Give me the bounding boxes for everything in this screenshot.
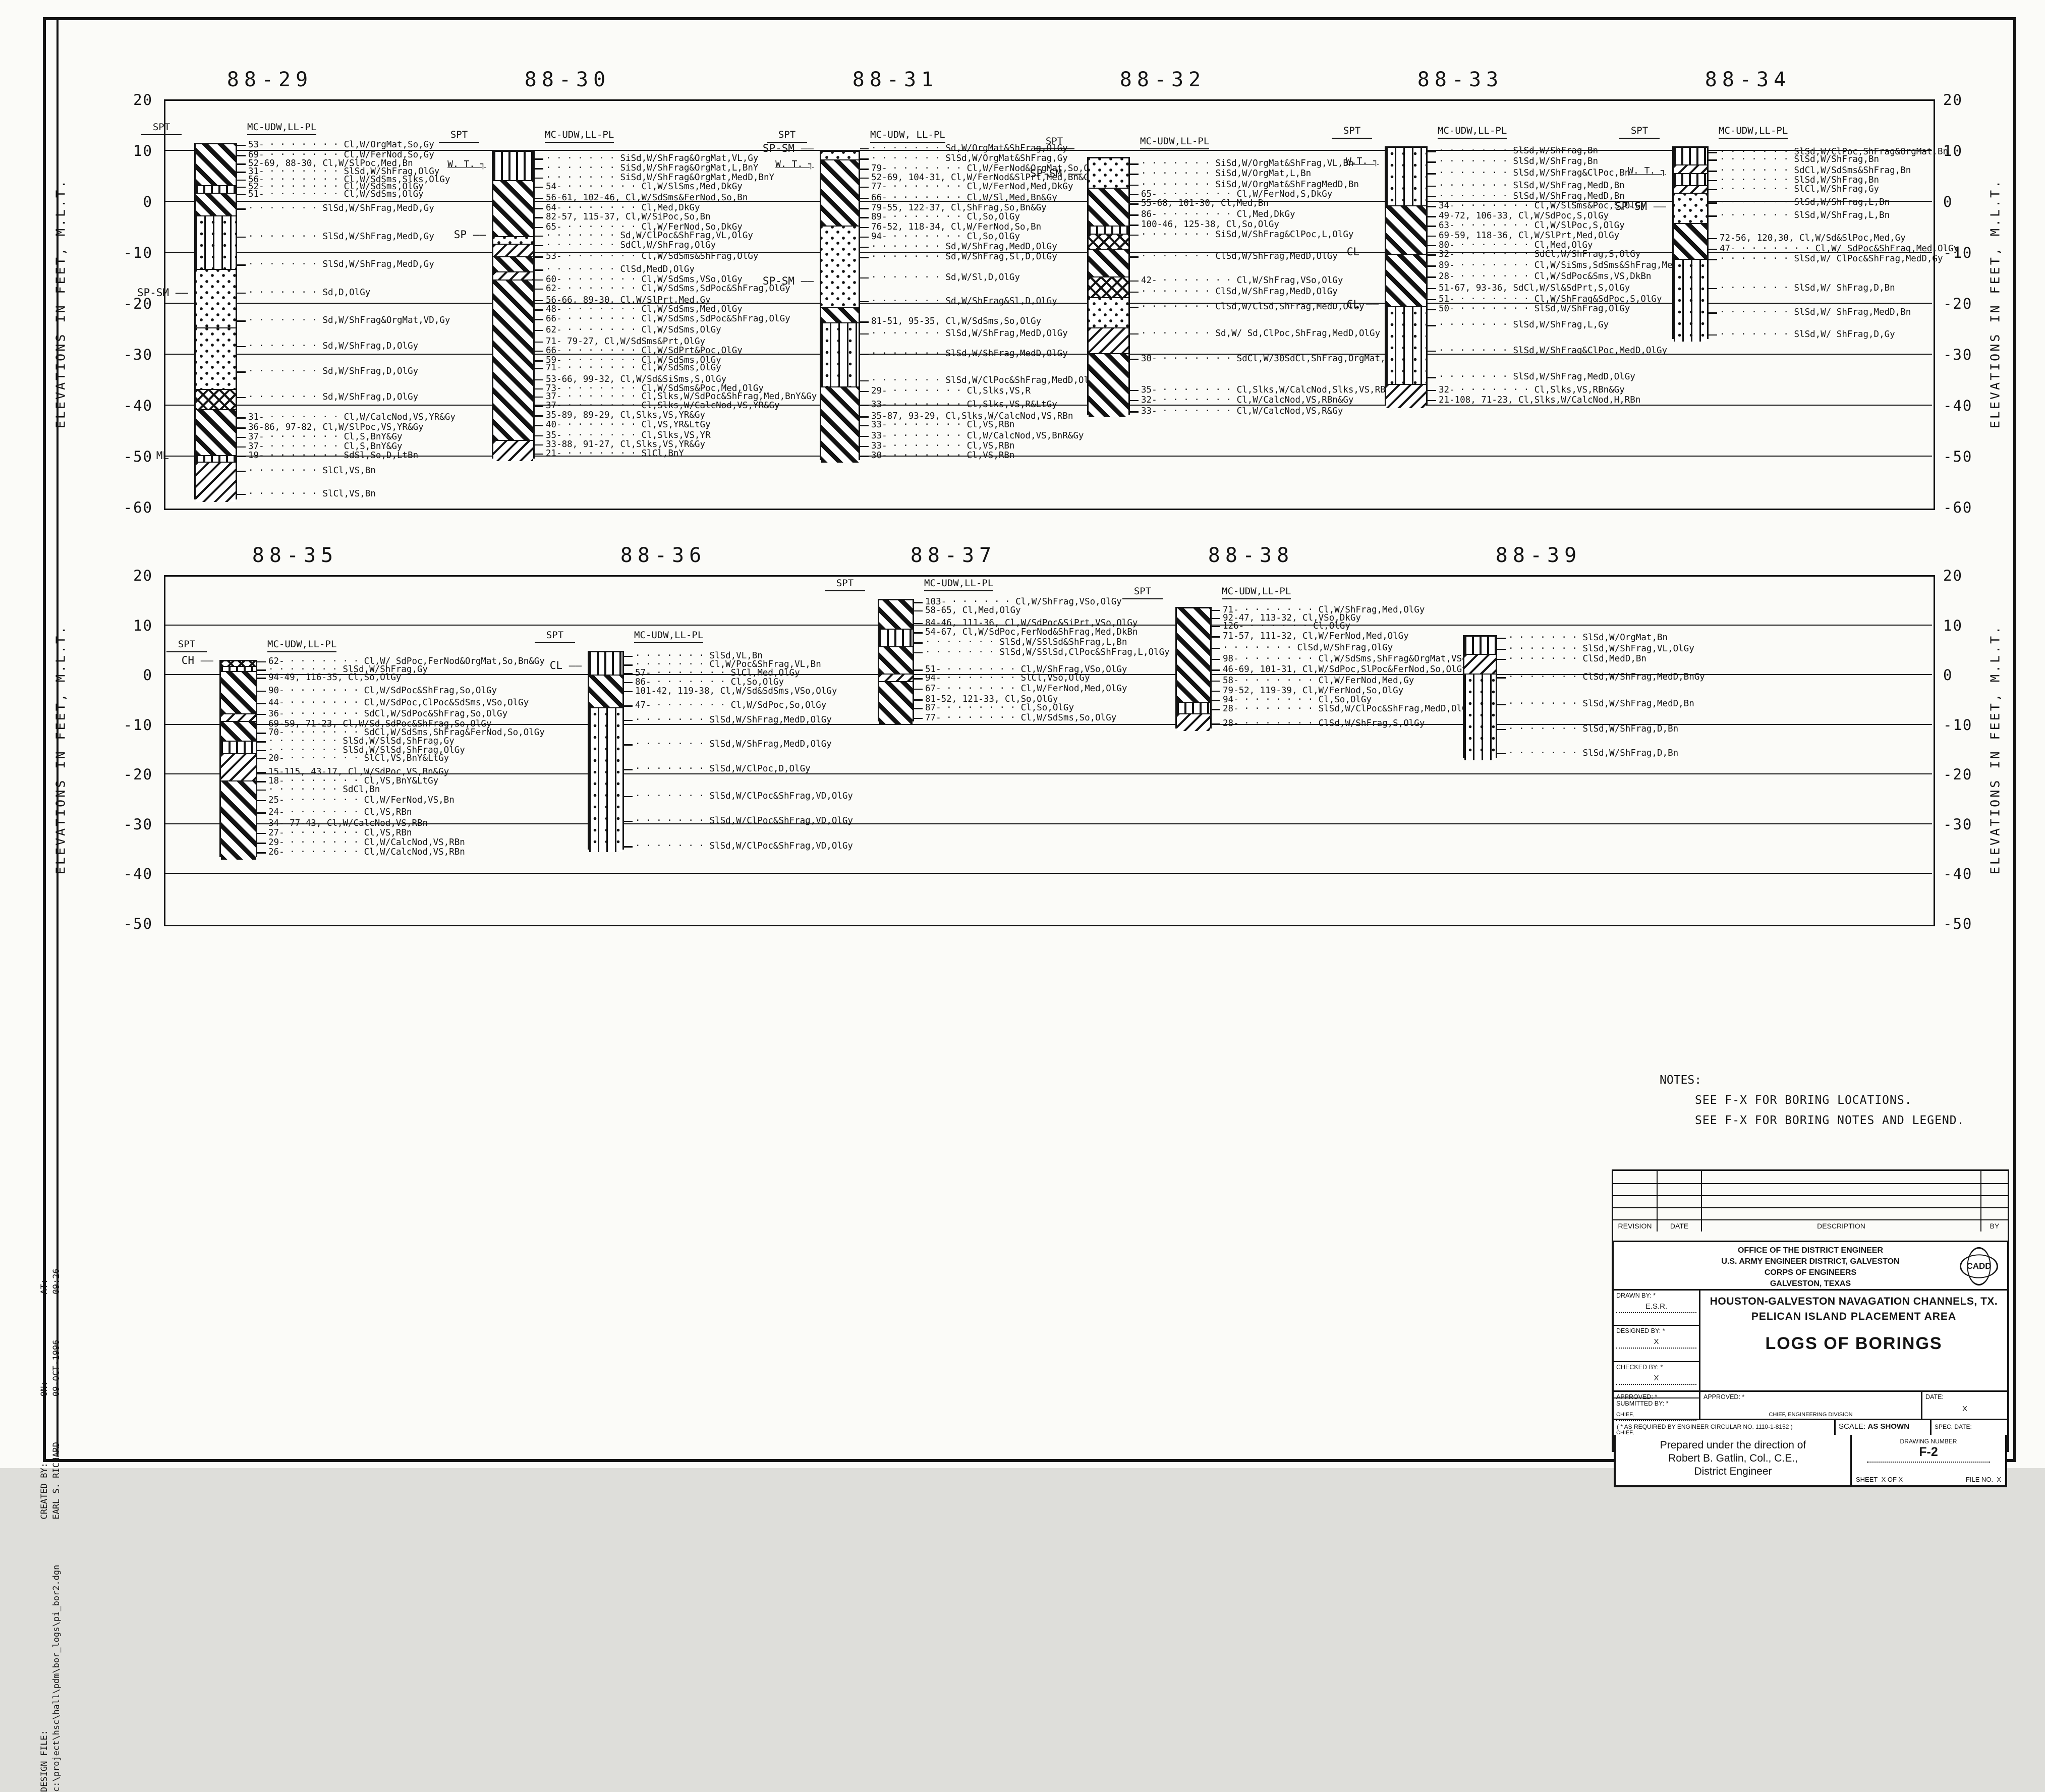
entry-tick	[624, 796, 633, 798]
cadd-logo-icon: CADD	[1960, 1247, 1998, 1285]
entry-tick	[237, 471, 246, 472]
entry-tick	[1130, 390, 1139, 391]
entry-tick	[535, 236, 543, 237]
entry-tick	[535, 397, 543, 398]
entry-label: 27- · · · · · · · Cl,VS,RBn	[268, 828, 412, 838]
entry-label: 33- · · · · · · · Cl,Slks,VS,R&LtGy	[871, 400, 1057, 410]
stratum-segment-diag	[1386, 254, 1426, 307]
entry-label: · · · · · · · SlCl,VS,Bn	[248, 466, 376, 476]
entry-tick	[1709, 215, 1717, 217]
entry-tick	[257, 750, 266, 752]
soil-class-label: CL ——	[471, 659, 582, 671]
entry-tick	[914, 642, 923, 644]
entry-tick	[1212, 648, 1220, 649]
entry-label: · · · · · · · SlSd,W/ClPoc&ShFrag,VD,OlG…	[635, 841, 853, 851]
entry-label: 126- · · · · · · Cl,OlGy	[1223, 621, 1350, 631]
entry-label: 47- · · · · · · · Cl,W/SdPoc,So,OlGy	[635, 700, 826, 710]
entry-label: 21- · · · · · · · SlCl,BnY	[546, 449, 684, 459]
entry-label: 69-59, 118-36, Cl,W/SlPrt,Med,OlGy	[1439, 231, 1619, 241]
mc-udw-ll-pl-header: MC-UDW,LL-PL	[1140, 136, 1209, 149]
entry-label: 33- · · · · · · · Cl,VS,RBn	[871, 441, 1014, 451]
entry-tick	[624, 656, 633, 657]
axis-title-right: ELEVATIONS IN FEET, M.L.T.	[1988, 623, 2003, 875]
entry-tick	[535, 368, 543, 369]
boring-title: 88-32	[1057, 68, 1269, 91]
entry-tick	[1212, 681, 1220, 682]
stratum-segment-diag	[1089, 249, 1128, 278]
entry-tick	[257, 733, 266, 734]
entry-tick	[535, 289, 543, 290]
elevation-gridline	[164, 823, 1932, 824]
entry-tick	[535, 454, 543, 455]
axis-tick-label: 20	[1943, 91, 1963, 108]
stratum-segment-vert	[589, 652, 622, 675]
entry-tick	[860, 354, 869, 355]
boring-column	[492, 150, 535, 459]
axis-tick-label: -10	[1943, 716, 1972, 734]
spt-header: SPT	[439, 129, 479, 143]
entry-tick	[914, 718, 923, 719]
entry-tick	[914, 708, 923, 709]
entry-label: · · · · · · · SlSd,W/ClPoc&ShFrag,MedD,O…	[871, 375, 1100, 385]
stratum-segment-diag	[821, 307, 859, 323]
entry-tick	[1428, 245, 1436, 247]
entry-tick	[1212, 691, 1220, 692]
stratum-segment-vertdot	[589, 707, 622, 852]
entry-label: 81-51, 95-35, Cl,W/SdSms,So,OlGy	[871, 316, 1041, 326]
entry-label: · · · · · · · SlSd,W/ShFrag,L,Bn	[1720, 197, 1890, 207]
spt-header: SPT	[1619, 125, 1660, 139]
stratum-segment-diag	[821, 159, 859, 227]
created-by-value: EARL S. RICHARD	[51, 1442, 62, 1520]
drawing-sheet: DESIGN FILE: c:\project\hsc\hall\pdm\bor…	[0, 0, 2045, 1468]
entry-tick	[257, 772, 266, 773]
entry-tick	[1212, 610, 1220, 611]
entry-label: · · · · · · · SlSd,W/ShFrag,L,Gy	[1439, 320, 1609, 330]
entry-label: · · · · · · · SlSd,W/ShFrag,MedD,OlGy	[871, 328, 1068, 339]
design-file-value: c:\project\hsc\hall\pdm\bor_logs\pi_bor2…	[51, 1565, 62, 1792]
entry-label: 29- · · · · · · · Cl,Slks,VS,R	[871, 386, 1031, 396]
entry-label: 35-89, 89-29, Cl,Slks,VS,YR&Gy	[546, 410, 705, 420]
stratum-segment-vert	[1674, 148, 1707, 164]
entry-label: 37- · · · · · · · Cl,Slks,W/CalcNod,VS,Y…	[546, 401, 780, 411]
entry-tick	[535, 360, 543, 362]
designed-by-cell: DESIGNED BY: * X	[1614, 1326, 1699, 1362]
stratum-segment-cross	[196, 389, 236, 410]
stratum-segment-diag	[1089, 353, 1128, 417]
entry-label: · · · · · · · Sd,W/ShFrag,D,OlGy	[248, 392, 418, 402]
title-block: REVISION DATE DESCRIPTION BY OFFICE OF T…	[1612, 1169, 2009, 1452]
axis-tick-label: -60	[1943, 499, 1972, 516]
entry-tick	[535, 379, 543, 381]
entry-tick	[535, 208, 543, 209]
entry-tick	[535, 435, 543, 437]
entry-tick	[1428, 299, 1436, 301]
entry-label: · · · · · · · SlSd,W/SSlSd&ShFrag,L,Bn	[925, 637, 1127, 647]
mc-udw-ll-pl-header: MC-UDW,LL-PL	[1438, 125, 1507, 139]
stratum-segment-diag	[879, 646, 913, 675]
entry-tick	[1428, 390, 1436, 391]
soil-class-label: CL ——	[1268, 298, 1379, 310]
entry-tick	[535, 319, 543, 320]
boring-title: 88-33	[1354, 68, 1566, 91]
entry-tick	[624, 664, 633, 666]
entry-label: 98- · · · · · · · Cl,W/SdSms,ShFrag&OrgM…	[1223, 654, 1494, 664]
entry-label: 51- · · · · · · · Cl,W/SdSms,OlGy	[248, 189, 424, 199]
boring-title: 88-39	[1433, 544, 1644, 567]
entry-tick	[237, 208, 246, 210]
entry-tick	[257, 812, 266, 814]
sheet-number: SHEET X OF X	[1856, 1476, 1903, 1483]
mc-udw-ll-pl-header: MC-UDW,LL-PL	[247, 122, 316, 135]
entry-label: 66- · · · · · · · Cl,W/SdSms,SdPoc&ShFra…	[546, 314, 790, 324]
entry-label: 44- · · · · · · · Cl,W/SdPoc,ClPoc&SdSms…	[268, 698, 529, 708]
checked-by-value: X	[1616, 1374, 1696, 1385]
axis-tick-label: -20	[97, 766, 153, 783]
entry-label: 55-68, 101-30, Cl,Med,Bn	[1141, 198, 1269, 208]
project-title-line1: HOUSTON-GALVESTON NAVAGATION CHANNELS, T…	[1700, 1296, 2007, 1308]
boring-title: 88-34	[1642, 68, 1854, 91]
created-by-stamp: CREATED BY: EARL S. RICHARD	[39, 1442, 62, 1520]
stratum-segment-diag	[493, 279, 533, 441]
entry-tick	[257, 703, 266, 704]
entry-tick	[914, 602, 923, 603]
revision-col-header: REVISION	[1613, 1220, 1658, 1231]
entry-tick	[1428, 206, 1436, 207]
entry-label: 31- · · · · · · · Cl,W/CalcNod,VS,YR&Gy	[248, 412, 456, 422]
stratum-segment-vert	[221, 741, 256, 754]
stratum-segment-diag2	[1464, 654, 1496, 675]
entry-tick	[237, 456, 246, 457]
entry-tick	[1497, 649, 1506, 650]
entry-tick	[257, 781, 266, 782]
entry-tick	[535, 415, 543, 417]
date-value: X	[1925, 1405, 2004, 1413]
entry-tick	[1212, 626, 1220, 628]
entry-label: 87- · · · · · · · Cl,So,OlGy	[925, 703, 1074, 713]
water-table-label: W. T. ┐	[375, 159, 486, 170]
entry-label: 25- · · · · · · · Cl,W/FerNod,VS,Bn	[268, 795, 455, 805]
axis-tick-label: -20	[1943, 295, 1972, 312]
entry-label: · · · · · · · SlSd,W/ ShFrag,D,Gy	[1720, 329, 1895, 340]
entry-tick	[1428, 151, 1436, 152]
entry-tick	[237, 397, 246, 399]
axis-tick-label: -20	[1943, 766, 1972, 783]
entry-tick	[1428, 236, 1436, 237]
entry-tick	[1130, 333, 1139, 335]
entry-label: 33- · · · · · · · Cl,VS,RBn	[871, 420, 1014, 430]
entry-tick	[914, 689, 923, 690]
boring-title: 88-31	[789, 68, 1001, 91]
soil-class-label: CH ——	[102, 654, 213, 666]
entry-tick	[1212, 636, 1220, 638]
footnote-row: ( * AS REQUIRED BY ENGINEER CIRCULAR NO.…	[1614, 1419, 2007, 1435]
boring-title: 88-30	[462, 68, 673, 91]
stratum-segment-diag	[221, 671, 256, 714]
entry-tick	[1212, 709, 1220, 710]
entry-tick	[1428, 309, 1436, 310]
entry-tick	[535, 406, 543, 407]
water-table-label: W.T. ┐	[1268, 156, 1379, 166]
entry-tick	[1428, 226, 1436, 227]
designed-by-value: X	[1616, 1337, 1696, 1349]
prepared-under-cell: Prepared under the direction of Robert B…	[1616, 1435, 1852, 1485]
entry-label: 84-46, 111-36, Cl,W/SdPoc&SiPrt,VSo,OlGy	[925, 618, 1138, 628]
entry-tick	[1428, 216, 1436, 217]
axis-tick-label: -10	[97, 244, 153, 261]
entry-tick	[1130, 235, 1139, 236]
entry-tick	[1130, 292, 1139, 293]
approved-left-cell: APPROVED: * CHIEF,	[1614, 1392, 1700, 1419]
entry-tick	[1497, 638, 1506, 639]
bottom-row: Prepared under the direction of Robert B…	[1614, 1435, 2007, 1487]
entry-tick	[1709, 249, 1717, 250]
boring-column	[1385, 146, 1428, 406]
stratum-segment-diag	[1089, 188, 1128, 227]
drawing-number: F-2	[1867, 1445, 1990, 1463]
entry-label: · · · · · · · Sd,W/ShFrag&OrgMat,VD,Gy	[248, 315, 450, 325]
entry-tick	[1709, 259, 1717, 260]
axis-tick-label: 10	[1943, 617, 1963, 634]
stratum-segment-vertdot	[1674, 259, 1707, 342]
entry-tick	[535, 198, 543, 199]
entry-label: · · · · · · · SlSd,W/ShFrag,MedD,Gy	[248, 203, 434, 213]
entry-label: 63- · · · · · · · Cl,W/SlPoc,S,OlGy	[1439, 220, 1625, 231]
office-line: CORPS OF ENGINEERS	[1614, 1267, 2007, 1278]
entry-label: · · · · · · · SlSd,W/OrgMat&ShFrag,Gy	[871, 153, 1068, 163]
entry-label: 20- · · · · · · · SlCl,VS,BnY&LtGy	[268, 753, 449, 763]
entry-label: · · · · · · · SlSd,W/SSlSd,ClPoc&ShFrag,…	[925, 647, 1170, 657]
entry-tick	[1497, 704, 1506, 705]
entry-label: · · · · · · · SlSd,W/ShFrag,Bn	[1720, 175, 1879, 185]
stratum-segment-vertdot	[1386, 148, 1426, 205]
entry-label: 46-69, 101-31, Cl,W/SdPoc,SlPoc&FerNod,S…	[1223, 664, 1467, 675]
entry-label: · · · · · · · ClSd,MedD,Bn	[1508, 654, 1646, 664]
stratum-segment-diag	[196, 193, 236, 216]
entry-label: 28- · · · · · · · Cl,W/SdPoc&Sms,VS,DkBn	[1439, 271, 1651, 282]
entry-label: · · · · · · · SdCl,W/SdSms&ShFrag,Bn	[1720, 165, 1911, 176]
stratum-segment-vertdot	[1386, 306, 1426, 385]
axis-tick-label: 0	[97, 193, 153, 210]
stratum-segment-cross	[221, 661, 256, 666]
entry-tick	[535, 425, 543, 426]
entry-tick	[535, 342, 543, 343]
entry-label: 65- · · · · · · · Cl,W/FerNod,S,DkGy	[1141, 189, 1332, 199]
entry-label: · · · · · · · SlSd,W/ShFrag,VL,OlGy	[1508, 644, 1694, 654]
entry-tick	[914, 669, 923, 671]
entry-label: · · · · · · · SlSd,W/ShFrag,Bn	[1439, 146, 1598, 156]
entry-tick	[535, 256, 543, 258]
stratum-segment-dots	[196, 269, 236, 328]
entry-label: · · · · · · · Sd,W/ShFrag,MedD,OlGy	[871, 242, 1057, 252]
soil-class-label: SP-SM ——	[1555, 200, 1666, 212]
boring-column	[194, 143, 237, 499]
entry-label: 72-56, 120,30, Cl,W/Sd&SlPoc,Med,Gy	[1720, 233, 1906, 243]
entry-label: 19- · · · · · · · SdSl,So,D,LtBn	[248, 451, 418, 461]
entry-label: 71- · · · · · · · Cl,W/SdSms,OlGy	[546, 363, 721, 373]
entry-tick	[860, 456, 869, 457]
entry-label: 21-108, 71-23, Cl,Slks,W/CalcNod,H,RBn	[1439, 395, 1640, 405]
entry-tick	[1709, 180, 1717, 182]
entry-tick	[535, 187, 543, 188]
entry-label: 94- · · · · · · · Cl,So,OlGy	[871, 232, 1020, 242]
entry-label: 82-57, 115-37, Cl,W/SiPoc,So,Bn	[546, 212, 711, 222]
entry-label: 32- · · · · · · · SdCl,W/ShFrag,S,OlGy	[1439, 249, 1640, 259]
entry-tick	[1130, 400, 1139, 402]
office-block: OFFICE OF THE DISTRICT ENGINEER U.S. ARM…	[1614, 1242, 2007, 1291]
entry-tick	[1428, 325, 1436, 326]
entry-tick	[535, 279, 543, 281]
stratum-segment-diag	[196, 144, 236, 185]
axis-tick-label: -60	[97, 499, 153, 516]
boring-column	[878, 599, 914, 721]
entry-label: 32- · · · · · · · Cl,Slks,VS,RBn&Gy	[1439, 385, 1625, 395]
soil-class-label: SP-SM ——	[703, 275, 814, 287]
entry-tick	[237, 172, 246, 173]
design-file-label: DESIGN FILE:	[39, 1565, 49, 1792]
axis-title-left: ELEVATIONS IN FEET, M.L.T.	[53, 178, 68, 430]
elevation-gridline	[164, 456, 1932, 457]
stratum-segment-dots	[1674, 193, 1707, 225]
entry-tick	[257, 758, 266, 760]
entry-label: · · · · · · · ClSd,W/ShFrag,MedD,BnGy	[1508, 672, 1705, 682]
entry-tick	[860, 227, 869, 229]
revision-table: REVISION DATE DESCRIPTION BY	[1612, 1169, 2009, 1242]
entry-tick	[237, 417, 246, 419]
stratum-segment-diag2	[493, 244, 533, 257]
entry-tick	[860, 436, 869, 437]
entry-tick	[1709, 159, 1717, 161]
entry-tick	[914, 678, 923, 680]
office-line: GALVESTON, TEXAS	[1614, 1278, 2007, 1290]
drawn-by-cell: DRAWN BY: * E.S.R.	[1614, 1291, 1699, 1326]
entry-label: 79-52, 119-39, Cl,W/FerNod,So,OlGy	[1223, 686, 1403, 696]
entry-label: · · · · · · · Sd,W/ShFrag,Sl,D,OlGy	[871, 252, 1057, 262]
entry-label: 77- · · · · · · · Cl,W/FerNod,Med,DkGy	[871, 182, 1073, 192]
entry-label: 56-61, 102-46, Cl,W/SdSms&FerNod,So,Bn	[546, 193, 748, 203]
entry-label: · · · · · · · SlSd,W/ShFrag,MedD,OlGy	[635, 715, 832, 725]
axis-tick-label: -50	[1943, 448, 1972, 465]
entry-tick	[624, 673, 633, 675]
scale-value: AS SHOWN	[1868, 1422, 1910, 1431]
stratum-segment-vert	[1177, 702, 1210, 714]
entry-label: · · · · · · · SlSd,W/ShFrag,D,Bn	[1508, 748, 1678, 758]
stratum-segment-diag	[1674, 223, 1707, 260]
water-table-label: W. T. ┐	[703, 159, 814, 170]
entry-tick	[257, 661, 266, 663]
entry-tick	[624, 720, 633, 721]
entry-tick	[535, 227, 543, 229]
axis-tick-label: -40	[97, 865, 153, 882]
spt-header: SPT	[825, 578, 865, 591]
entry-label: 89- · · · · · · · Cl,So,OlGy	[871, 212, 1020, 222]
entry-tick	[860, 321, 869, 323]
entry-tick	[237, 437, 246, 438]
stratum-segment-diag2	[1089, 327, 1128, 354]
stratum-segment-dots	[1089, 158, 1128, 188]
approval-row: APPROVED: * CHIEF, APPROVED: * CHIEF, EN…	[1614, 1390, 2007, 1419]
entry-label: · · · · · · · SlSd,W/ShFrag,D,Bn	[1508, 724, 1678, 734]
entry-tick	[535, 330, 543, 331]
entry-tick	[1130, 185, 1139, 186]
entry-tick	[1130, 174, 1139, 175]
entry-label: 53-66, 99-32, Cl,W/Sd&SiSms,S,OlGy	[546, 374, 726, 384]
entry-tick	[1428, 186, 1436, 187]
drawing-number-cell: DRAWING NUMBER F-2 SHEET X OF X FILE NO.…	[1852, 1435, 2005, 1485]
entry-label: · · · · · · · ClSd,MedD,OlGy	[546, 264, 695, 274]
entry-tick	[860, 416, 869, 418]
entry-label: · · · · · · · SiSd,W/OrgMat,L,Bn	[1141, 169, 1311, 179]
entry-label: 100-46, 125-38, Cl,So,OlGy	[1141, 219, 1279, 230]
entry-tick	[1709, 189, 1717, 191]
date-col-header: DATE	[1658, 1220, 1702, 1231]
entry-label: · · · · · · · SiSd,W/OrgMat&ShFragMedD,B…	[1141, 180, 1359, 190]
entry-tick	[257, 852, 266, 854]
entry-label: 47- · · · · · · · Cl,W/ SdPoc&ShFrag,Med…	[1720, 244, 1959, 254]
revision-header-row: REVISION DATE DESCRIPTION BY	[1613, 1219, 2008, 1231]
entry-tick	[257, 790, 266, 791]
drawn-by-value: E.S.R.	[1616, 1302, 1696, 1313]
entry-label: · · · · · · · Sd,W/ShFrag,D,OlGy	[248, 366, 418, 376]
entry-tick	[860, 217, 869, 218]
entry-tick	[624, 744, 633, 746]
entry-label: · · · · · · · SlSd,W/ ShFrag,D,Bn	[1720, 283, 1895, 293]
boring-title: 88-36	[557, 544, 769, 567]
entry-tick	[237, 237, 246, 238]
entry-label: · · · · · · · SlSd,W/ShFrag,MedD,OlGy	[871, 349, 1068, 359]
by-col-header: BY	[1981, 1220, 2008, 1231]
stratum-segment-vert	[1464, 637, 1496, 654]
entry-tick	[1709, 334, 1717, 336]
note-line: SEE F-X FOR BORING NOTES AND LEGEND.	[1695, 1114, 1965, 1127]
entry-label: · · · · · · · SlCl,W/ShFrag,Gy	[1720, 184, 1879, 194]
entry-label: 67- · · · · · · · Cl,W/FerNod,Med,OlGy	[925, 684, 1127, 694]
entry-label: · · · · · · · SdCl,W/ShFrag,OlGy	[546, 240, 716, 250]
entry-label: · · · · · · · SlSd,W/ClPoc&ShFrag,VD,OlG…	[635, 816, 853, 826]
created-on-stamp: ON: 09-OCT-1996	[39, 1340, 62, 1397]
entry-tick	[1709, 288, 1717, 290]
entry-tick	[535, 351, 543, 352]
entry-tick	[624, 705, 633, 707]
entry-tick	[1130, 256, 1139, 258]
stratum-segment-dots	[1089, 297, 1128, 329]
entry-tick	[535, 217, 543, 218]
axis-tick-label: -50	[97, 915, 153, 932]
stratum-segment-vertdot	[1464, 674, 1496, 760]
boring-column	[1672, 146, 1709, 339]
entry-tick	[535, 269, 543, 271]
entry-label: 33- · · · · · · · Cl,W/CalcNod,VS,BnR&Gy	[871, 431, 1084, 441]
axis-tick-label: -40	[97, 397, 153, 414]
stratum-segment-diag	[1386, 205, 1426, 255]
signature-column: DRAWN BY: * E.S.R. DESIGNED BY: * X CHEC…	[1614, 1291, 1700, 1390]
entry-label: · · · · · · · Sd,W/ClPoc&ShFrag,VL,OlGy	[546, 231, 753, 241]
stratum-segment-diag	[196, 409, 236, 456]
entry-label: · · · · · · · Sd,W/ Sd,ClPoc,ShFrag,MedD…	[1141, 328, 1380, 339]
title-block-main: OFFICE OF THE DISTRICT ENGINEER U.S. ARM…	[1612, 1242, 2009, 1452]
entry-label: 42- · · · · · · · Cl,W/ShFrag,VSo,OlGy	[1141, 275, 1343, 286]
entry-label: 71- 79-27, Cl,W/SdSms&Prt,OlGy	[546, 337, 705, 347]
mc-udw-ll-pl-header: MC-UDW,LL-PL	[545, 129, 614, 143]
stratum-segment-diag2	[493, 440, 533, 461]
entry-tick	[1428, 288, 1436, 290]
stratum-segment-vertdot	[196, 215, 236, 270]
entry-tick	[237, 264, 246, 266]
entry-tick	[1428, 161, 1436, 163]
entry-tick	[257, 741, 266, 743]
entry-tick	[1709, 171, 1717, 172]
spt-header: SPT	[1122, 586, 1163, 599]
